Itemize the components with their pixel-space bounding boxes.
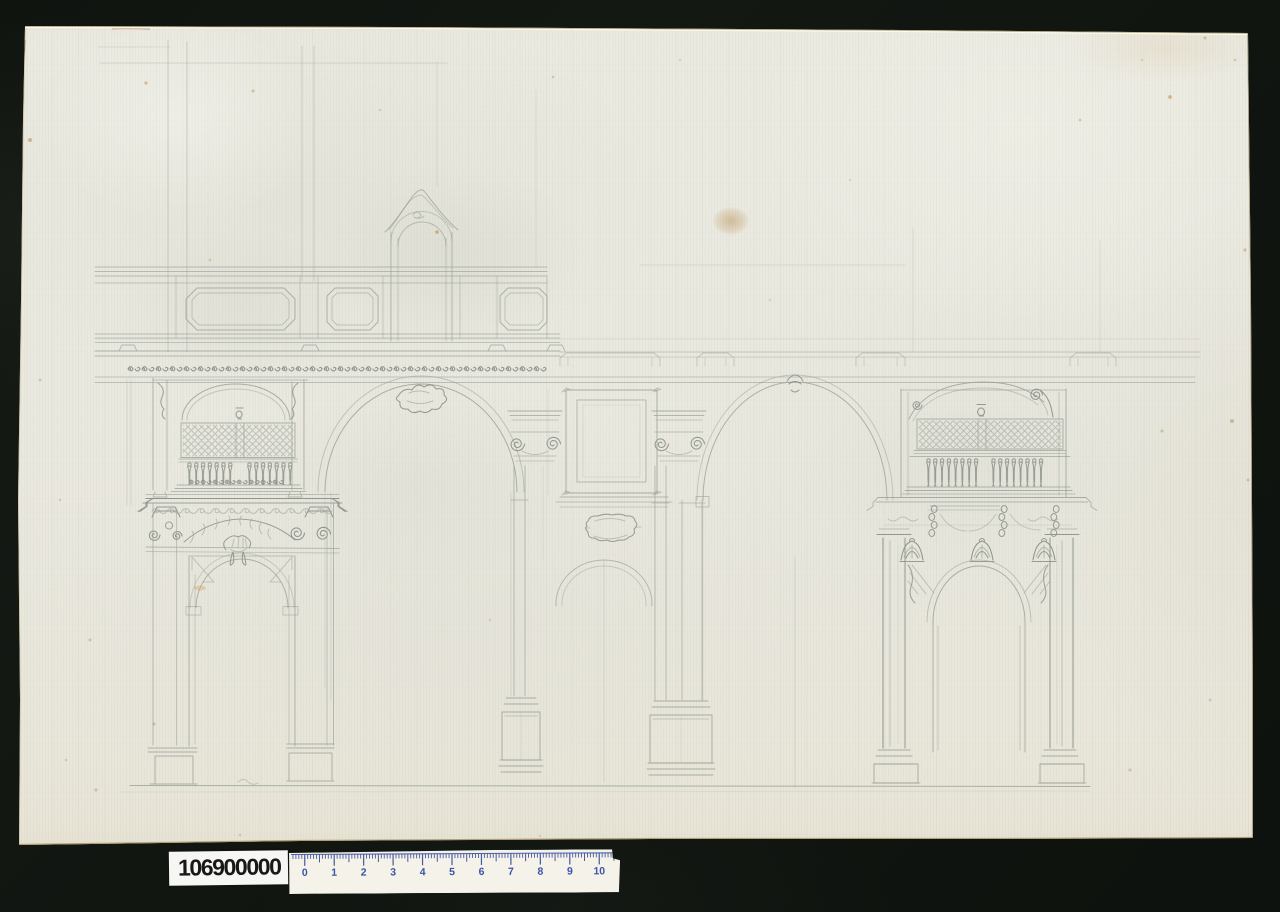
svg-text:10: 10 (593, 865, 605, 877)
svg-text:3: 3 (390, 866, 396, 878)
svg-text:2: 2 (361, 867, 367, 879)
svg-text:0: 0 (302, 867, 308, 879)
svg-text:9: 9 (567, 866, 573, 878)
svg-text:4: 4 (420, 866, 426, 878)
svg-text:6: 6 (479, 866, 485, 878)
svg-text:5: 5 (449, 866, 455, 878)
svg-text:1: 1 (331, 867, 337, 879)
svg-text:8: 8 (537, 866, 543, 878)
svg-text:7: 7 (508, 866, 514, 878)
